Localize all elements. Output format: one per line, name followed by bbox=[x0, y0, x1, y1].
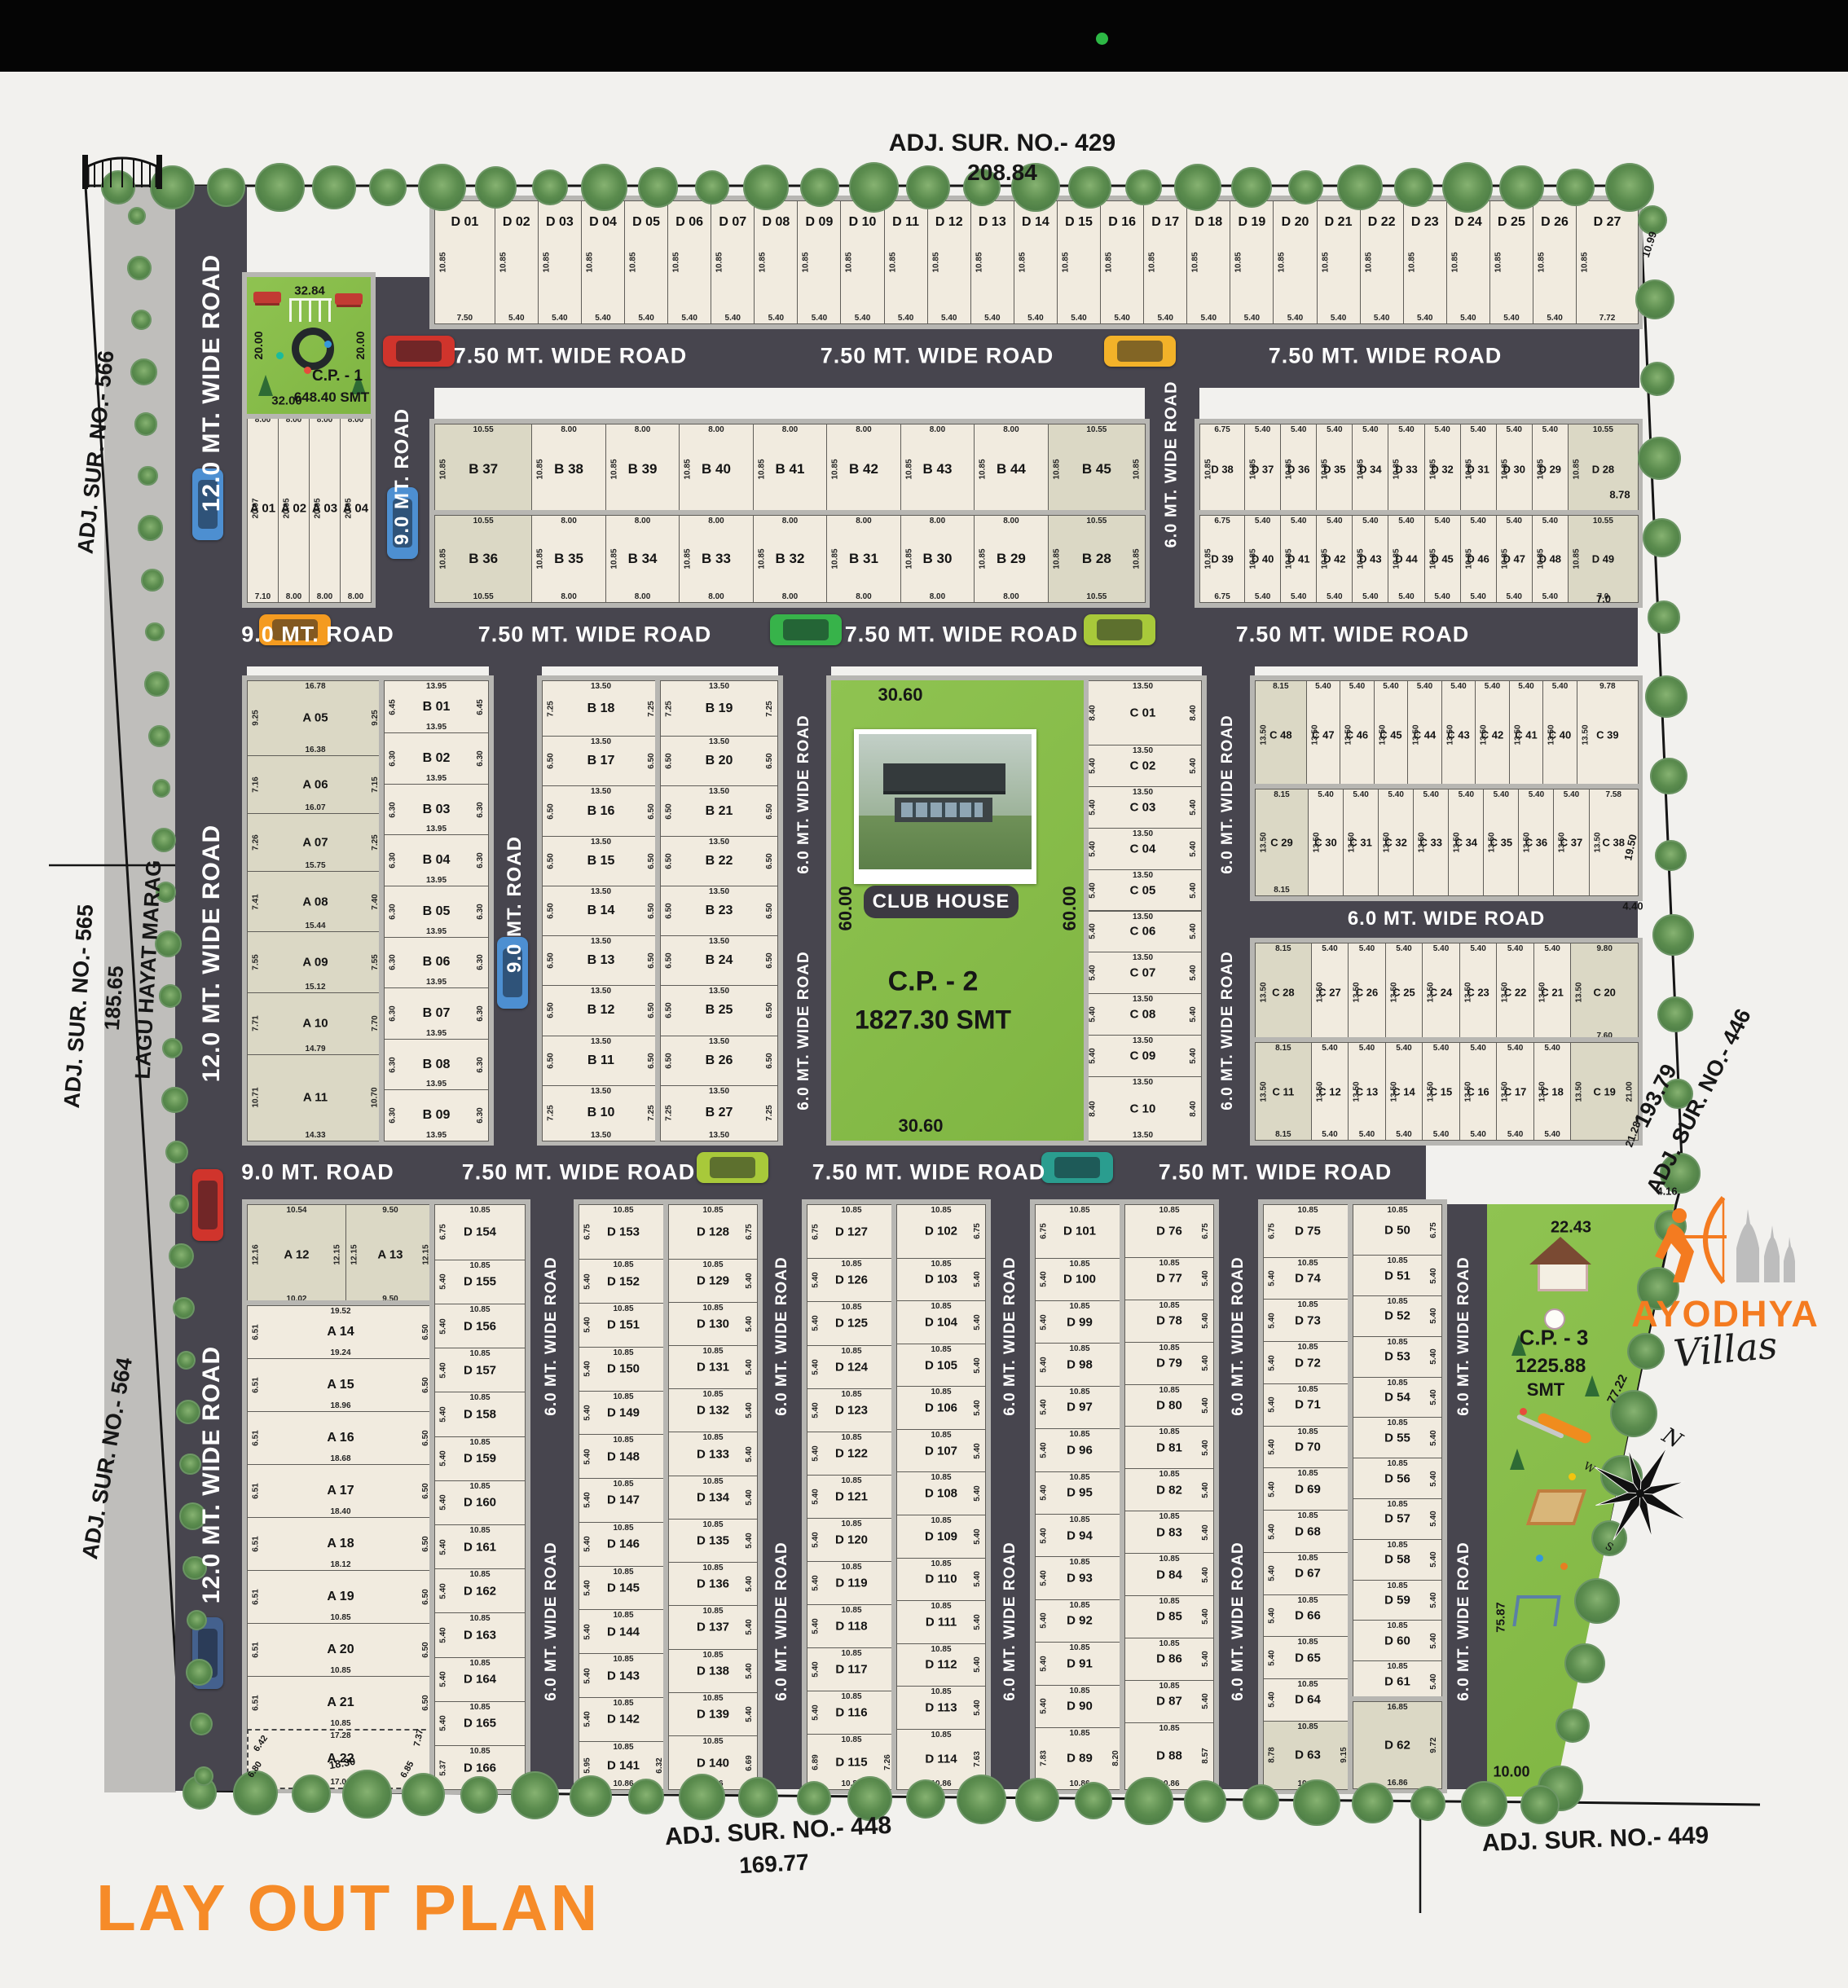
plot-d53: D 5310.855.40 bbox=[1353, 1336, 1442, 1378]
dimension-label: 10.85 bbox=[613, 1260, 633, 1269]
plot-b27: B 2713.5013.507.257.25 bbox=[660, 1085, 778, 1141]
dimension-label: 7.25 bbox=[665, 1106, 674, 1121]
dimension-label: 10.85 bbox=[702, 1260, 723, 1269]
dimension-label: 10.85 bbox=[684, 459, 693, 479]
plot-b06: B 0613.956.306.30 bbox=[384, 937, 489, 989]
plot-label: D 80 bbox=[1156, 1398, 1182, 1412]
dimension-label: 5.40 bbox=[1494, 790, 1509, 799]
plot-d82: D 8210.855.40 bbox=[1124, 1468, 1214, 1511]
plot-d135: D 13510.855.40 bbox=[668, 1519, 758, 1563]
plot-label: B 32 bbox=[776, 551, 805, 567]
dimension-label: 5.40 bbox=[1396, 1044, 1411, 1053]
road-label: 7.50 MT. WIDE ROAD bbox=[462, 1160, 696, 1185]
tree-icon bbox=[581, 164, 627, 210]
plot-b16: B 1613.506.506.50 bbox=[542, 785, 660, 836]
dimension-label: 10.85 bbox=[1069, 1687, 1089, 1696]
plot-block-a01: A 018.007.1020.07A 028.008.0020.05A 038.… bbox=[247, 414, 371, 603]
dimension-label: 13.50 bbox=[591, 838, 611, 847]
pine-tree-icon bbox=[258, 375, 273, 396]
person-icon bbox=[304, 367, 311, 374]
dimension-label: 5.40 bbox=[1268, 1692, 1277, 1708]
dimension-label: 6.50 bbox=[421, 1430, 430, 1445]
plot-a18: A 1818.126.516.50 bbox=[247, 1517, 434, 1571]
dimension-label: 10.55 bbox=[473, 592, 494, 601]
dimension-label: 5.40 bbox=[552, 314, 567, 323]
dimension-label: 5.40 bbox=[439, 1672, 448, 1687]
tree-icon bbox=[130, 358, 157, 385]
dimension-label: 10.85 bbox=[469, 1482, 490, 1491]
dimension-label: 13.95 bbox=[426, 825, 447, 833]
plot-label: D 128 bbox=[697, 1225, 729, 1238]
dimension-label: 8.00 bbox=[348, 416, 363, 424]
dimension-label: 5.40 bbox=[1470, 517, 1485, 526]
dimension-label: 10.85 bbox=[1297, 1385, 1318, 1394]
plot-label: D 07 bbox=[719, 215, 746, 230]
person-icon bbox=[1520, 1408, 1527, 1415]
plot-d110: D 11010.855.40 bbox=[896, 1558, 986, 1602]
dimension-label: 10.85 bbox=[330, 1613, 350, 1622]
plot-label: D 19 bbox=[1238, 215, 1265, 230]
dimension-label: 13.50 bbox=[1133, 746, 1153, 755]
dimension-label: 10.85 bbox=[613, 1699, 633, 1708]
plot-d111: D 11110.855.40 bbox=[896, 1600, 986, 1644]
plot-d116: D 11610.855.40 bbox=[807, 1691, 896, 1735]
dimension-label: 10.85 bbox=[1387, 1297, 1407, 1306]
dimension-label: 6.50 bbox=[421, 1377, 430, 1392]
plot-label: D 11 bbox=[892, 215, 919, 230]
plot-block-a14: A 1419.5219.246.516.50A 1518.966.516.50A… bbox=[247, 1305, 434, 1788]
plot-c42: C 425.4013.50 bbox=[1475, 680, 1510, 789]
dimension-label: 8.00 bbox=[635, 425, 650, 434]
plot-label: D 155 bbox=[464, 1275, 496, 1289]
dimension-label: 13.50 bbox=[1133, 1078, 1153, 1087]
dimension-label: 10.55 bbox=[473, 517, 494, 526]
dimension-label: 5.40 bbox=[1433, 1044, 1449, 1053]
dimension-label: 5.40 bbox=[1327, 592, 1342, 601]
dimension-label: 10.54 bbox=[286, 1206, 306, 1215]
dimension-label: 8.40 bbox=[1189, 705, 1198, 720]
dimension-label: 6.50 bbox=[647, 754, 656, 769]
dimension-label: 5.40 bbox=[1089, 799, 1098, 815]
plot-label: B 03 bbox=[423, 803, 451, 817]
dimension-label: 6.30 bbox=[389, 955, 398, 970]
plot-label: A 13 bbox=[377, 1248, 403, 1262]
plot-label: B 35 bbox=[554, 551, 583, 567]
swing-icon bbox=[1512, 1595, 1560, 1626]
dimension-label: 6.50 bbox=[547, 754, 556, 769]
plot-label: D 81 bbox=[1156, 1440, 1182, 1454]
dimension-label: 5.40 bbox=[1429, 1471, 1438, 1486]
dimension-label: 8.15 bbox=[1275, 1044, 1291, 1053]
dimension-label: 10.85 bbox=[931, 1302, 951, 1311]
plot-b42: B 428.0010.85 bbox=[826, 424, 900, 515]
dimension-label: 5.40 bbox=[1362, 425, 1378, 434]
dimension-label: 20.05 bbox=[314, 498, 323, 518]
dimension-label: 10.85 bbox=[1387, 1500, 1407, 1509]
dimension-label: 5.40 bbox=[812, 1273, 821, 1288]
dimension-label: 5.40 bbox=[1429, 1268, 1438, 1283]
map-annotation: 1225.88 bbox=[1516, 1355, 1586, 1378]
plot-d142: D 14210.855.40 bbox=[579, 1697, 668, 1742]
plot-block-d62: D 6216.8516.869.72 bbox=[1353, 1701, 1442, 1788]
plot-d51: D 5110.855.40 bbox=[1353, 1255, 1442, 1296]
dimension-label: 10.85 bbox=[888, 252, 897, 272]
plot-label: A 06 bbox=[302, 777, 328, 791]
dimension-label: 10.85 bbox=[702, 1607, 723, 1616]
dimension-label: 5.40 bbox=[745, 1663, 754, 1678]
dimension-label: 18.40 bbox=[330, 1507, 350, 1516]
dimension-label: 8.15 bbox=[1275, 1130, 1291, 1139]
archer-temple-logo-icon bbox=[1648, 1191, 1803, 1289]
dimension-label: 13.50 bbox=[1558, 832, 1567, 852]
plot-label: D 139 bbox=[697, 1707, 729, 1721]
plot-b21: B 2113.506.506.50 bbox=[660, 785, 778, 836]
entrance-gate-icon bbox=[81, 147, 163, 191]
dimension-label: 21.00 bbox=[1625, 1081, 1634, 1102]
dimension-label: 10.85 bbox=[1387, 1418, 1407, 1427]
dimension-label: 5.40 bbox=[1268, 1650, 1277, 1665]
road-label: 6.0 MT. WIDE ROAD bbox=[1219, 715, 1237, 873]
dimension-label: 10.85 bbox=[802, 252, 811, 272]
plot-a10: A 1014.797.717.70 bbox=[247, 992, 384, 1055]
green-dot-icon bbox=[1096, 33, 1108, 45]
plot-d80: D 8010.855.40 bbox=[1124, 1384, 1214, 1427]
plot-label: D 160 bbox=[464, 1496, 496, 1510]
dimension-label: 10.85 bbox=[469, 1349, 490, 1358]
dimension-label: 10.85 bbox=[1387, 1581, 1407, 1590]
dimension-label: 6.50 bbox=[547, 903, 556, 918]
dimension-label: 6.30 bbox=[476, 802, 485, 817]
dimension-label: 6.50 bbox=[421, 1483, 430, 1498]
villa-windows bbox=[890, 770, 999, 786]
dimension-label: 5.40 bbox=[439, 1450, 448, 1466]
plot-label: D 56 bbox=[1384, 1471, 1410, 1485]
dimension-label: 10.85 bbox=[1159, 1682, 1179, 1691]
plot-b45: B 4510.5510.8510.85 bbox=[1048, 424, 1146, 515]
dimension-label: 5.40 bbox=[1362, 517, 1378, 526]
dimension-label: 6.50 bbox=[647, 803, 656, 819]
dimension-label: 10.85 bbox=[469, 1305, 490, 1314]
plot-c23: C 235.4013.50 bbox=[1459, 943, 1498, 1042]
dimension-label: 7.10 bbox=[255, 592, 271, 601]
dimension-label: 10.85 bbox=[469, 1659, 490, 1668]
dimension-label: 13.50 bbox=[1412, 724, 1421, 745]
dimension-label: 15.12 bbox=[305, 983, 325, 992]
dimension-label: 5.40 bbox=[1429, 1430, 1438, 1445]
dimension-label: 8.00 bbox=[286, 592, 301, 601]
plot-c01: C 0113.508.408.40 bbox=[1084, 680, 1202, 745]
dimension-label: 17.28 bbox=[330, 1731, 350, 1740]
gazebo-icon bbox=[1529, 1237, 1591, 1264]
plot-d100: D 10010.855.40 bbox=[1035, 1258, 1124, 1301]
dimension-label: 10.85 bbox=[1061, 252, 1070, 272]
tree-icon bbox=[1499, 165, 1543, 209]
plot-label: D 132 bbox=[697, 1404, 729, 1418]
person-icon bbox=[276, 352, 284, 359]
dimension-label: 7.58 bbox=[1606, 790, 1621, 799]
dimension-label: 5.40 bbox=[1383, 682, 1398, 691]
plot-d146: D 14610.855.40 bbox=[579, 1522, 668, 1567]
road-label: 6.0 MT. WIDE ROAD bbox=[543, 1256, 561, 1415]
layout-plan-canvas: LAY OUT PLAN AYODHYA Villas bbox=[0, 0, 1848, 1988]
dimension-label: 16.07 bbox=[305, 803, 325, 812]
plot-c40: C 405.4013.50 bbox=[1542, 680, 1577, 789]
plot-block-a05: A 0516.7816.389.259.25A 0616.077.167.15A… bbox=[247, 680, 384, 1141]
dimension-label: 6.75 bbox=[1214, 592, 1230, 601]
dimension-label: 6.51 bbox=[252, 1536, 261, 1551]
dimension-label: 6.30 bbox=[476, 904, 485, 919]
plot-a07: A 0715.757.267.25 bbox=[247, 813, 384, 873]
dimension-label: 10.85 bbox=[931, 1345, 951, 1354]
dimension-label: 10.85 bbox=[469, 1261, 490, 1270]
dimension-label: 13.50 bbox=[1463, 982, 1472, 1002]
plot-d92: D 9210.855.40 bbox=[1035, 1599, 1124, 1643]
person-icon bbox=[1536, 1555, 1543, 1562]
top-black-bar bbox=[0, 0, 1848, 72]
dimension-label: 13.50 bbox=[1445, 724, 1454, 745]
plot-c26: C 265.4013.50 bbox=[1348, 943, 1386, 1042]
plot-label: B 44 bbox=[997, 461, 1026, 477]
plot-label: D 112 bbox=[925, 1658, 957, 1672]
plot-b02: B 0213.956.306.30 bbox=[384, 732, 489, 785]
dimension-label: 20.05 bbox=[345, 498, 354, 518]
tree-icon bbox=[849, 162, 899, 212]
dimension-label: 10.85 bbox=[1387, 1541, 1407, 1550]
plot-block-b37: B 3710.5510.85B 388.0010.85B 398.0010.85… bbox=[434, 424, 1145, 515]
dimension-label: 5.40 bbox=[1542, 425, 1558, 434]
plot-d151: D 15110.855.40 bbox=[579, 1303, 668, 1348]
tree-icon bbox=[162, 1038, 183, 1058]
dimension-label: 9.25 bbox=[371, 710, 380, 726]
dimension-label: 5.40 bbox=[1315, 682, 1331, 691]
plot-d60: D 6010.855.40 bbox=[1353, 1620, 1442, 1661]
dimension-label: 5.40 bbox=[1564, 790, 1579, 799]
page-title: LAY OUT PLAN bbox=[96, 1871, 600, 1946]
dimension-label: 10.85 bbox=[931, 1260, 951, 1269]
dimension-label: 10.85 bbox=[1297, 1680, 1318, 1689]
plot-d72: D 7210.855.40 bbox=[1263, 1341, 1353, 1384]
dimension-label: 13.50 bbox=[1260, 724, 1269, 745]
plot-d144: D 14410.855.40 bbox=[579, 1609, 668, 1654]
plot-label: B 26 bbox=[706, 1053, 733, 1068]
dimension-label: 5.40 bbox=[1359, 1044, 1375, 1053]
plot-d48: D 485.405.4010.85 bbox=[1532, 515, 1569, 603]
dimension-label: 15.75 bbox=[305, 861, 325, 870]
plot-d29: D 295.4010.85 bbox=[1532, 424, 1569, 515]
plot-label: D 84 bbox=[1156, 1568, 1182, 1581]
plot-label: B 15 bbox=[587, 854, 615, 869]
dimension-label: 10.85 bbox=[979, 459, 988, 479]
plot-label: A 17 bbox=[327, 1484, 354, 1498]
plot-label: D 64 bbox=[1295, 1693, 1321, 1707]
dimension-label: 10.85 bbox=[1500, 459, 1509, 479]
tree-icon bbox=[1293, 1779, 1340, 1827]
plot-label: B 19 bbox=[706, 702, 733, 716]
dimension-label: 5.40 bbox=[1318, 790, 1333, 799]
dimension-label: 5.40 bbox=[745, 1577, 754, 1592]
tree-icon bbox=[1648, 600, 1680, 633]
plot-d10: D 105.4010.85 bbox=[840, 200, 884, 324]
plot-c04: C 0413.505.405.40 bbox=[1084, 828, 1202, 870]
dimension-label: 6.50 bbox=[647, 1053, 656, 1068]
dimension-label: 10.85 bbox=[841, 1476, 861, 1485]
map-annotation: 32.84 bbox=[294, 284, 325, 298]
dimension-label: 10.85 bbox=[1387, 1379, 1407, 1388]
dimension-label: 10.85 bbox=[1069, 1260, 1089, 1269]
plot-label: D 51 bbox=[1384, 1269, 1410, 1282]
plot-label: C 28 bbox=[1272, 987, 1294, 999]
plot-label: B 43 bbox=[922, 461, 952, 477]
dimension-label: 13.50 bbox=[1133, 1131, 1153, 1140]
tree-icon bbox=[177, 1351, 196, 1370]
plot-label: D 57 bbox=[1384, 1512, 1410, 1526]
plot-label: B 02 bbox=[423, 751, 451, 766]
plot-b03: B 0313.956.306.30 bbox=[384, 784, 489, 836]
plot-c39: C 399.7813.50 bbox=[1577, 680, 1639, 789]
plot-b19: B 1913.507.257.25 bbox=[660, 680, 778, 737]
plot-d62: D 6216.8516.869.72 bbox=[1353, 1701, 1442, 1789]
dimension-label: 5.40 bbox=[1040, 1357, 1049, 1372]
plot-d112: D 11210.855.40 bbox=[896, 1643, 986, 1687]
dimension-label: 5.40 bbox=[1291, 425, 1306, 434]
dimension-label: 10.85 bbox=[469, 1438, 490, 1447]
dimension-label: 10.85 bbox=[1297, 1638, 1318, 1647]
plot-label: B 25 bbox=[706, 1003, 733, 1018]
plot-label: B 08 bbox=[423, 1058, 451, 1072]
plot-d139: D 13910.855.40 bbox=[668, 1692, 758, 1736]
map-annotation: 30.60 bbox=[898, 1115, 943, 1137]
plot-block-d127: D 12710.856.75D 12610.855.40D 12510.855.… bbox=[807, 1204, 896, 1789]
dimension-label: 6.30 bbox=[476, 955, 485, 970]
plot-label: D 111 bbox=[926, 1615, 957, 1629]
dimension-label: 7.15 bbox=[371, 776, 380, 792]
plot-d37: D 375.4010.85 bbox=[1244, 424, 1281, 515]
dimension-label: 8.40 bbox=[1189, 1101, 1198, 1116]
plot-label: D 04 bbox=[589, 215, 617, 230]
dimension-label: 13.50 bbox=[1523, 832, 1532, 852]
plot-d28: D 2810.5510.85 bbox=[1568, 424, 1639, 515]
dimension-label: 6.50 bbox=[665, 1003, 674, 1018]
dimension-label: 12.15 bbox=[332, 1244, 341, 1264]
plot-label: A 09 bbox=[302, 955, 328, 969]
plot-label: D 53 bbox=[1384, 1350, 1410, 1364]
plot-label: D 119 bbox=[835, 1576, 867, 1590]
dimension-label: 9.25 bbox=[252, 710, 261, 726]
dimension-label: 6.50 bbox=[421, 1324, 430, 1339]
dimension-label: 6.30 bbox=[389, 750, 398, 766]
dimension-label: 13.50 bbox=[1315, 1081, 1324, 1102]
road-label: 6.0 MT. WIDE ROAD bbox=[1163, 381, 1181, 548]
plot-c48: C 488.1513.50 bbox=[1255, 680, 1307, 789]
plot-label: D 54 bbox=[1384, 1391, 1410, 1405]
plot-b24: B 2413.506.506.50 bbox=[660, 935, 778, 986]
dimension-label: 13.50 bbox=[1133, 788, 1153, 797]
dimension-label: 10.85 bbox=[931, 1559, 951, 1568]
dimension-label: 5.40 bbox=[768, 314, 784, 323]
dimension-label: 6.50 bbox=[665, 754, 674, 769]
dimension-label: 16.85 bbox=[1387, 1703, 1407, 1712]
road-label: 7.50 MT. WIDE ROAD bbox=[845, 622, 1079, 648]
plot-d47: D 475.405.4010.85 bbox=[1496, 515, 1533, 603]
dimension-label: 10.85 bbox=[757, 459, 766, 479]
plot-label: D 125 bbox=[835, 1317, 868, 1330]
dimension-label: 10.85 bbox=[1069, 1473, 1089, 1482]
plot-d145: D 14510.855.40 bbox=[579, 1566, 668, 1611]
dimension-label: 5.40 bbox=[1189, 758, 1198, 773]
plot-label: C 38 bbox=[1603, 837, 1625, 849]
plot-d61: D 6110.855.40 bbox=[1353, 1660, 1442, 1702]
compass-rose-icon: N W S bbox=[1579, 1424, 1701, 1563]
tree-icon bbox=[797, 1781, 831, 1815]
dimension-label: 5.40 bbox=[638, 314, 653, 323]
plot-d84: D 8410.855.40 bbox=[1124, 1553, 1214, 1596]
plot-c45: C 455.4013.50 bbox=[1374, 680, 1409, 789]
plot-label: B 34 bbox=[628, 551, 658, 567]
plot-d21: D 215.4010.85 bbox=[1317, 200, 1361, 324]
plot-label: D 127 bbox=[835, 1225, 868, 1238]
dimension-label: 10.85 bbox=[1536, 459, 1545, 479]
plot-label: D 93 bbox=[1067, 1572, 1093, 1586]
dimension-label: 5.40 bbox=[1157, 314, 1173, 323]
plot-label: B 13 bbox=[587, 953, 615, 968]
plot-a20: A 2010.856.516.50 bbox=[247, 1623, 434, 1677]
dimension-label: 10.85 bbox=[613, 1348, 633, 1357]
dimension-label: 16.38 bbox=[305, 745, 325, 754]
dimension-label: 10.85 bbox=[841, 1206, 861, 1215]
plot-label: D 05 bbox=[632, 215, 660, 230]
tree-icon bbox=[369, 169, 407, 206]
tree-icon bbox=[1288, 170, 1323, 205]
dimension-label: 5.40 bbox=[1544, 1044, 1560, 1053]
tree-icon bbox=[570, 1775, 611, 1817]
dimension-label: 10.85 bbox=[702, 1347, 723, 1356]
dimension-label: 10.55 bbox=[1086, 592, 1107, 601]
plot-d154: D 15410.856.75 bbox=[434, 1204, 526, 1260]
road-label: 7.50 MT. WIDE ROAD bbox=[454, 344, 688, 369]
dimension-label: 15.44 bbox=[305, 921, 325, 930]
club-house-photo bbox=[854, 729, 1036, 884]
map-annotation: 60.00 bbox=[835, 886, 856, 930]
dimension-label: 13.50 bbox=[1133, 871, 1153, 880]
plot-label: D 114 bbox=[925, 1753, 957, 1766]
dimension-label: 5.40 bbox=[1450, 682, 1466, 691]
plot-d109: D 10910.855.40 bbox=[896, 1515, 986, 1559]
plot-label: B 09 bbox=[423, 1108, 451, 1123]
dimension-label: 10.85 bbox=[1132, 548, 1141, 569]
plot-label: B 05 bbox=[423, 904, 451, 919]
tree-icon bbox=[159, 984, 183, 1008]
plot-b18: B 1813.507.257.25 bbox=[542, 680, 660, 737]
plot-d149: D 14910.855.40 bbox=[579, 1391, 668, 1436]
dimension-label: 8.15 bbox=[1273, 682, 1288, 691]
plot-d56: D 5610.855.40 bbox=[1353, 1458, 1442, 1499]
plot-label: B 29 bbox=[997, 551, 1026, 567]
tree-icon bbox=[418, 164, 466, 212]
tree-icon bbox=[1068, 166, 1111, 209]
dimension-label: 5.40 bbox=[812, 1704, 821, 1720]
dimension-label: 5.40 bbox=[1268, 1313, 1277, 1328]
plot-d121: D 12110.855.40 bbox=[807, 1475, 896, 1519]
plot-d52: D 5210.855.40 bbox=[1353, 1295, 1442, 1337]
tree-icon bbox=[1352, 1783, 1393, 1823]
dimension-label: 10.85 bbox=[1297, 1206, 1318, 1215]
car-icon bbox=[697, 1152, 768, 1183]
plot-d55: D 5510.855.40 bbox=[1353, 1417, 1442, 1458]
plot-label: B 27 bbox=[706, 1106, 733, 1120]
dimension-label: 10.85 bbox=[1234, 252, 1243, 272]
dimension-label: 13.50 bbox=[1353, 982, 1362, 1002]
dimension-label: 10.85 bbox=[1387, 1459, 1407, 1468]
